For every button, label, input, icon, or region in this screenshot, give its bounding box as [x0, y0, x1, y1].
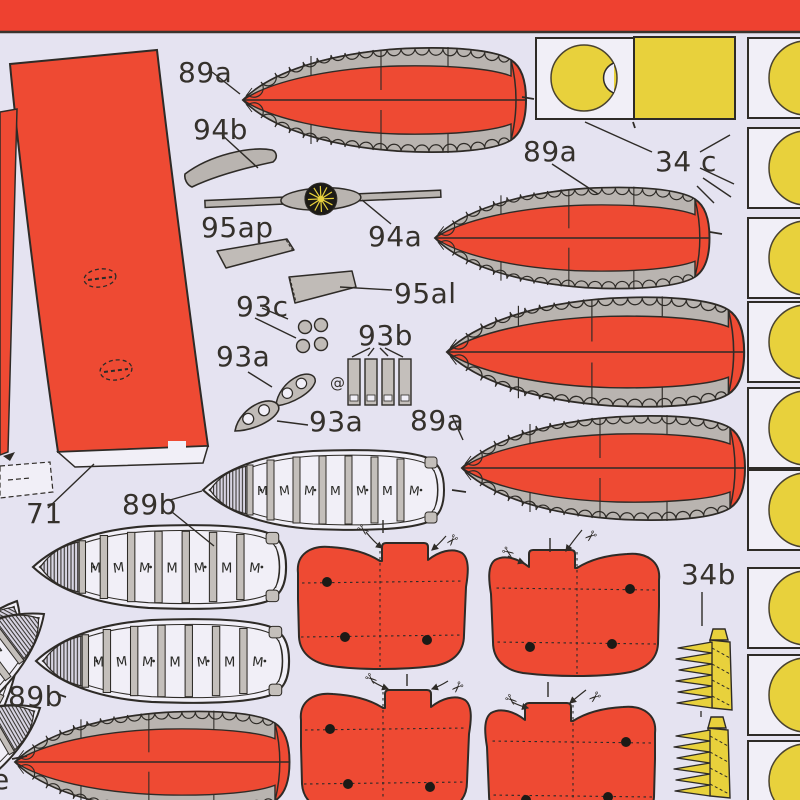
yellow-disc-box-8	[748, 655, 800, 735]
lifeboat-89b-c	[36, 619, 289, 703]
small-disc	[299, 321, 312, 334]
red-panel-part-71	[10, 50, 208, 467]
panel-notch	[168, 441, 186, 449]
small-disc	[315, 319, 328, 332]
flag-yellow-square	[634, 37, 735, 119]
part-label-89a-right: 89a	[523, 135, 577, 168]
part-label-34c: 34 c	[655, 145, 717, 178]
hull-side-89b-bottom	[15, 711, 290, 800]
red-cover-1	[298, 543, 468, 669]
scissors-icon: ✂	[441, 529, 463, 550]
red-cover-2	[489, 550, 659, 676]
yellow-disc-box-6	[748, 470, 800, 550]
hull-side-89a-4	[462, 415, 745, 521]
part-label-95al: 95al	[394, 277, 457, 310]
lifeboat-89b-a	[203, 450, 444, 530]
part-label-71: 71	[26, 497, 63, 530]
red-sliver-part	[0, 109, 17, 461]
red-cover-3	[301, 690, 471, 800]
comb-34b-1	[676, 629, 732, 710]
part-label-95ap: 95ap	[201, 211, 274, 244]
yellow-disc-column	[748, 38, 800, 800]
yellow-disc-box-3	[748, 218, 800, 298]
lifeboat-89b-b	[33, 525, 286, 609]
yellow-disc-box-5	[748, 388, 800, 468]
small-disc	[315, 338, 328, 351]
dashed-glue-tab	[0, 462, 53, 498]
part-label-89a-top: 89a	[178, 56, 232, 89]
crescent-93a-2	[229, 397, 283, 435]
comb-34b-2	[674, 717, 730, 798]
scissors-icon: ✂	[446, 676, 468, 698]
blade-part-94b	[185, 149, 276, 187]
hull-side-89a-2	[435, 187, 710, 290]
yellow-disc-box-1	[748, 38, 800, 118]
scissors-icon: ✂	[500, 689, 521, 711]
flag-part-34c	[536, 37, 735, 119]
scissors-icon: ✂	[580, 525, 601, 547]
part-label-89a-mid: 89a	[410, 404, 464, 437]
yellow-disc-box-9	[748, 741, 800, 800]
part-label-89b-upper: 89b	[122, 488, 177, 521]
spiral-mark: @	[330, 374, 345, 392]
partial-label-e: e	[0, 763, 10, 796]
part-label-93a-lower: 93a	[309, 405, 363, 438]
part-label-94a: 94a	[368, 220, 422, 253]
red-cover-4	[485, 703, 655, 800]
hull-side-89a-1	[243, 47, 526, 153]
disc-parts-93c	[297, 319, 328, 353]
part-label-34b: 34b	[681, 558, 736, 591]
hull-side-89a-3	[447, 296, 744, 407]
part-label-93c: 93c	[236, 290, 289, 323]
sheet-top-red-margin	[0, 0, 800, 31]
sliver-body	[0, 109, 17, 455]
small-disc	[297, 340, 310, 353]
model-sheet: M M M M M M M	[0, 0, 800, 800]
scissors-icon: ✂	[360, 668, 381, 690]
strip-parts-93b	[348, 359, 411, 405]
part-label-93b: 93b	[358, 319, 413, 352]
part-label-89b-lower: 89b	[8, 680, 63, 713]
model-sheet-graphic: M M M M M M M	[0, 0, 800, 800]
part-label-94b: 94b	[193, 113, 248, 146]
yellow-disc-box-7	[748, 568, 800, 648]
scissors-icon: ✂	[584, 686, 605, 708]
yellow-disc-box-4	[748, 302, 800, 382]
part-label-93a-upper: 93a	[216, 340, 270, 373]
panel-body	[10, 50, 208, 452]
yellow-disc-box-2	[748, 128, 800, 208]
